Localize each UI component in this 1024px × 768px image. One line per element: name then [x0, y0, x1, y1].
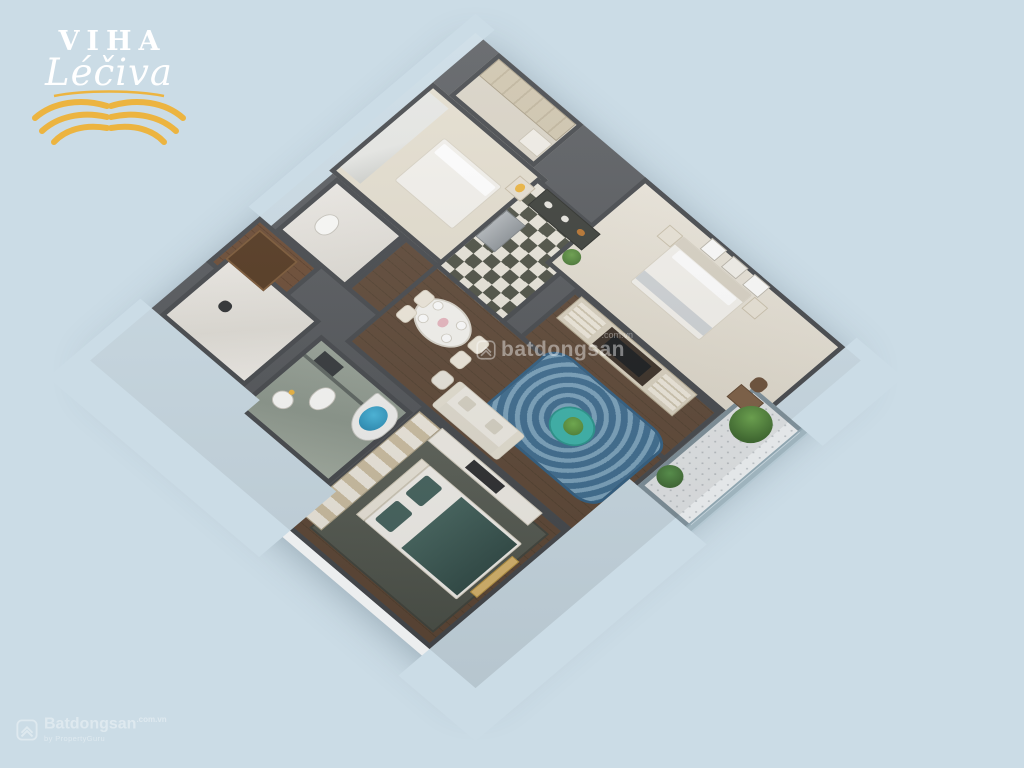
batdongsan-house-icon [476, 340, 496, 360]
table-plant [559, 414, 588, 438]
centerpiece-flowers [435, 316, 450, 329]
watermark-tagline: by PropertyGuru [44, 734, 167, 743]
watermark-center: batdongsan .com.vn [476, 338, 625, 362]
tub-water [353, 401, 393, 435]
watermark-domain: .com.vn [136, 715, 166, 724]
real-estate-render-canvas: VIHA Léčiva batdongsan .com.vn Batdo [0, 0, 1024, 768]
watermark-domain: .com.vn [601, 330, 633, 340]
lamp [513, 182, 527, 194]
watermark-brand: Batdongsan.com.vn [44, 716, 167, 732]
viha-leciva-logo: VIHA Léčiva [24, 26, 194, 152]
logo-text-line2: Léčiva [24, 51, 194, 94]
batdongsan-house-icon [16, 719, 38, 741]
watermark-corner: Batdongsan.com.vn by PropertyGuru [16, 716, 167, 743]
watermark-brand: batdongsan [501, 338, 625, 362]
gold-wings-icon [29, 90, 189, 152]
